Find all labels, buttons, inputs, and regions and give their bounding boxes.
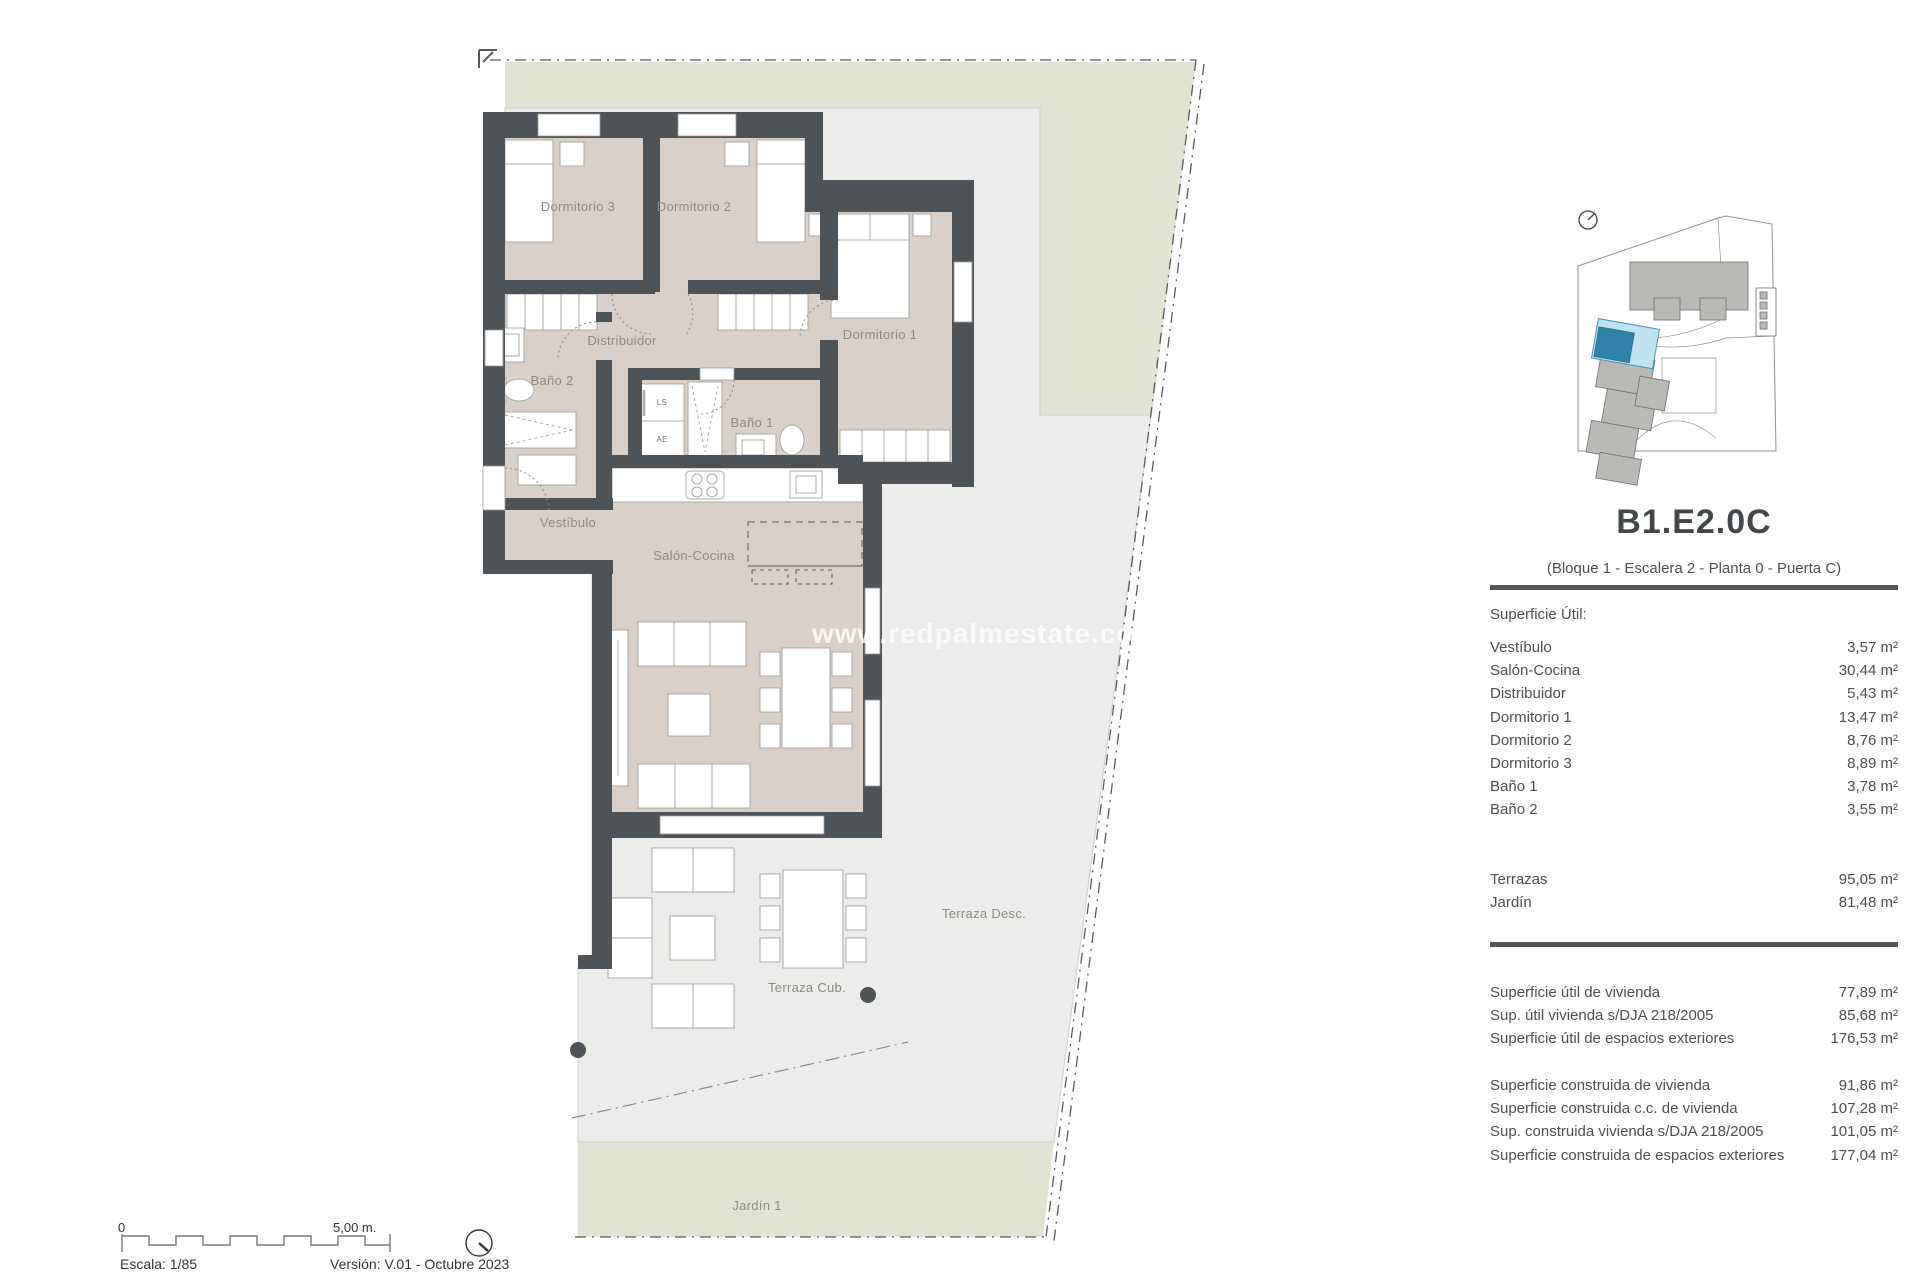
row-value: 3,78 m² — [1847, 778, 1898, 795]
escala-label: Escala: 1/85 — [120, 1256, 197, 1272]
row-label: Sup. útil vivienda s/DJA 218/2005 — [1490, 1007, 1713, 1024]
area-label-terraza-cub: Terraza Cub. — [768, 980, 846, 995]
row-value: 101,05 m² — [1830, 1123, 1898, 1140]
row-label: Vestíbulo — [1490, 639, 1552, 656]
row-label: Terrazas — [1490, 871, 1548, 888]
room-label-dormitorio1: Dormitorio 1 — [843, 327, 917, 342]
table-row: Terrazas 95,05 m² — [1490, 868, 1898, 891]
superficie-util-label: Superficie Útil: — [1490, 606, 1587, 623]
area-label-terraza-desc: Terraza Desc. — [942, 906, 1026, 921]
row-label: Dormitorio 3 — [1490, 755, 1572, 772]
row-label: Baño 2 — [1490, 801, 1538, 818]
table-row: Baño 1 3,78 m² — [1490, 775, 1898, 798]
room-label-distribuidor: Distribuidor — [587, 333, 656, 348]
table-row: Dormitorio 1 13,47 m² — [1490, 706, 1898, 729]
row-value: 5,43 m² — [1847, 685, 1898, 702]
table-row: Superficie útil de vivienda 77,89 m² — [1490, 981, 1898, 1004]
room-label-bano1: Baño 1 — [730, 415, 773, 430]
divider-rule-top — [1490, 585, 1898, 590]
row-label: Dormitorio 2 — [1490, 732, 1572, 749]
row-label: Jardín — [1490, 894, 1532, 911]
area-label-jardin1: Jardín 1 — [732, 1198, 781, 1213]
totals-construida-table: Superficie construida de vivienda 91,86 … — [1490, 1074, 1898, 1167]
row-value: 8,76 m² — [1847, 732, 1898, 749]
row-label: Distribuidor — [1490, 685, 1566, 702]
table-row: Salón-Cocina 30,44 m² — [1490, 659, 1898, 682]
floorplan-sheet: Dormitorio 3 Dormitorio 2 Dormitorio 1 D… — [0, 0, 1920, 1280]
row-value: 81,48 m² — [1839, 894, 1898, 911]
row-value: 30,44 m² — [1839, 662, 1898, 679]
totals-util-table: Superficie útil de vivienda 77,89 m² Sup… — [1490, 981, 1898, 1051]
closet-label-ae: AE — [656, 435, 667, 444]
table-row: Distribuidor 5,43 m² — [1490, 682, 1898, 705]
table-row: Superficie construida c.c. de vivienda 1… — [1490, 1097, 1898, 1120]
row-value: 95,05 m² — [1839, 871, 1898, 888]
table-row: Jardín 81,48 m² — [1490, 891, 1898, 914]
row-value: 176,53 m² — [1830, 1030, 1898, 1047]
row-label: Sup. construida vivienda s/DJA 218/2005 — [1490, 1123, 1764, 1140]
table-row: Vestíbulo 3,57 m² — [1490, 636, 1898, 659]
row-value: 3,57 m² — [1847, 639, 1898, 656]
row-value: 13,47 m² — [1839, 709, 1898, 726]
room-label-bano2: Baño 2 — [530, 373, 573, 388]
row-value: 8,89 m² — [1847, 755, 1898, 772]
table-row: Sup. construida vivienda s/DJA 218/2005 … — [1490, 1120, 1898, 1143]
room-label-dormitorio2: Dormitorio 2 — [657, 199, 731, 214]
row-value: 107,28 m² — [1830, 1100, 1898, 1117]
room-label-vestibulo: Vestíbulo — [540, 515, 596, 530]
closet-label-ls: LS — [657, 398, 667, 407]
room-label-salon-cocina: Salón-Cocina — [653, 548, 735, 563]
row-value: 91,86 m² — [1839, 1077, 1898, 1094]
divider-rule-bottom — [1490, 942, 1898, 947]
scale-end-label: 5,00 m. — [333, 1220, 376, 1235]
table-row: Superficie construida de espacios exteri… — [1490, 1144, 1898, 1167]
row-label: Baño 1 — [1490, 778, 1538, 795]
row-label: Dormitorio 1 — [1490, 709, 1572, 726]
table-row: Baño 2 3,55 m² — [1490, 798, 1898, 821]
compass-icon — [1579, 211, 1597, 229]
row-value: 77,89 m² — [1839, 984, 1898, 1001]
row-label: Superficie útil de espacios exteriores — [1490, 1030, 1734, 1047]
watermark: www.redpalmestate.com — [812, 618, 1160, 650]
site-plan-map — [1566, 198, 1816, 498]
row-label: Superficie construida de espacios exteri… — [1490, 1147, 1784, 1164]
row-value: 177,04 m² — [1830, 1147, 1898, 1164]
table-row: Sup. útil vivienda s/DJA 218/2005 85,68 … — [1490, 1004, 1898, 1027]
row-label: Salón-Cocina — [1490, 662, 1580, 679]
row-label: Superficie construida de vivienda — [1490, 1077, 1710, 1094]
north-compass-icon — [462, 1226, 496, 1260]
row-label: Superficie útil de vivienda — [1490, 984, 1660, 1001]
unit-title: B1.E2.0C — [1490, 503, 1898, 542]
table-row: Superficie construida de vivienda 91,86 … — [1490, 1074, 1898, 1097]
outdoor-areas-table: Terrazas 95,05 m² Jardín 81,48 m² — [1490, 868, 1898, 914]
row-label: Superficie construida c.c. de vivienda — [1490, 1100, 1738, 1117]
scale-zero-label: 0 — [118, 1220, 125, 1235]
table-row: Dormitorio 2 8,76 m² — [1490, 729, 1898, 752]
row-value: 3,55 m² — [1847, 801, 1898, 818]
row-value: 85,68 m² — [1839, 1007, 1898, 1024]
room-label-dormitorio3: Dormitorio 3 — [541, 199, 615, 214]
table-row: Superficie útil de espacios exteriores 1… — [1490, 1027, 1898, 1050]
table-row: Dormitorio 3 8,89 m² — [1490, 752, 1898, 775]
unit-subtitle: (Bloque 1 - Escalera 2 - Planta 0 - Puer… — [1490, 560, 1898, 577]
room-areas-table: Vestíbulo 3,57 m² Salón-Cocina 30,44 m² … — [1490, 636, 1898, 822]
